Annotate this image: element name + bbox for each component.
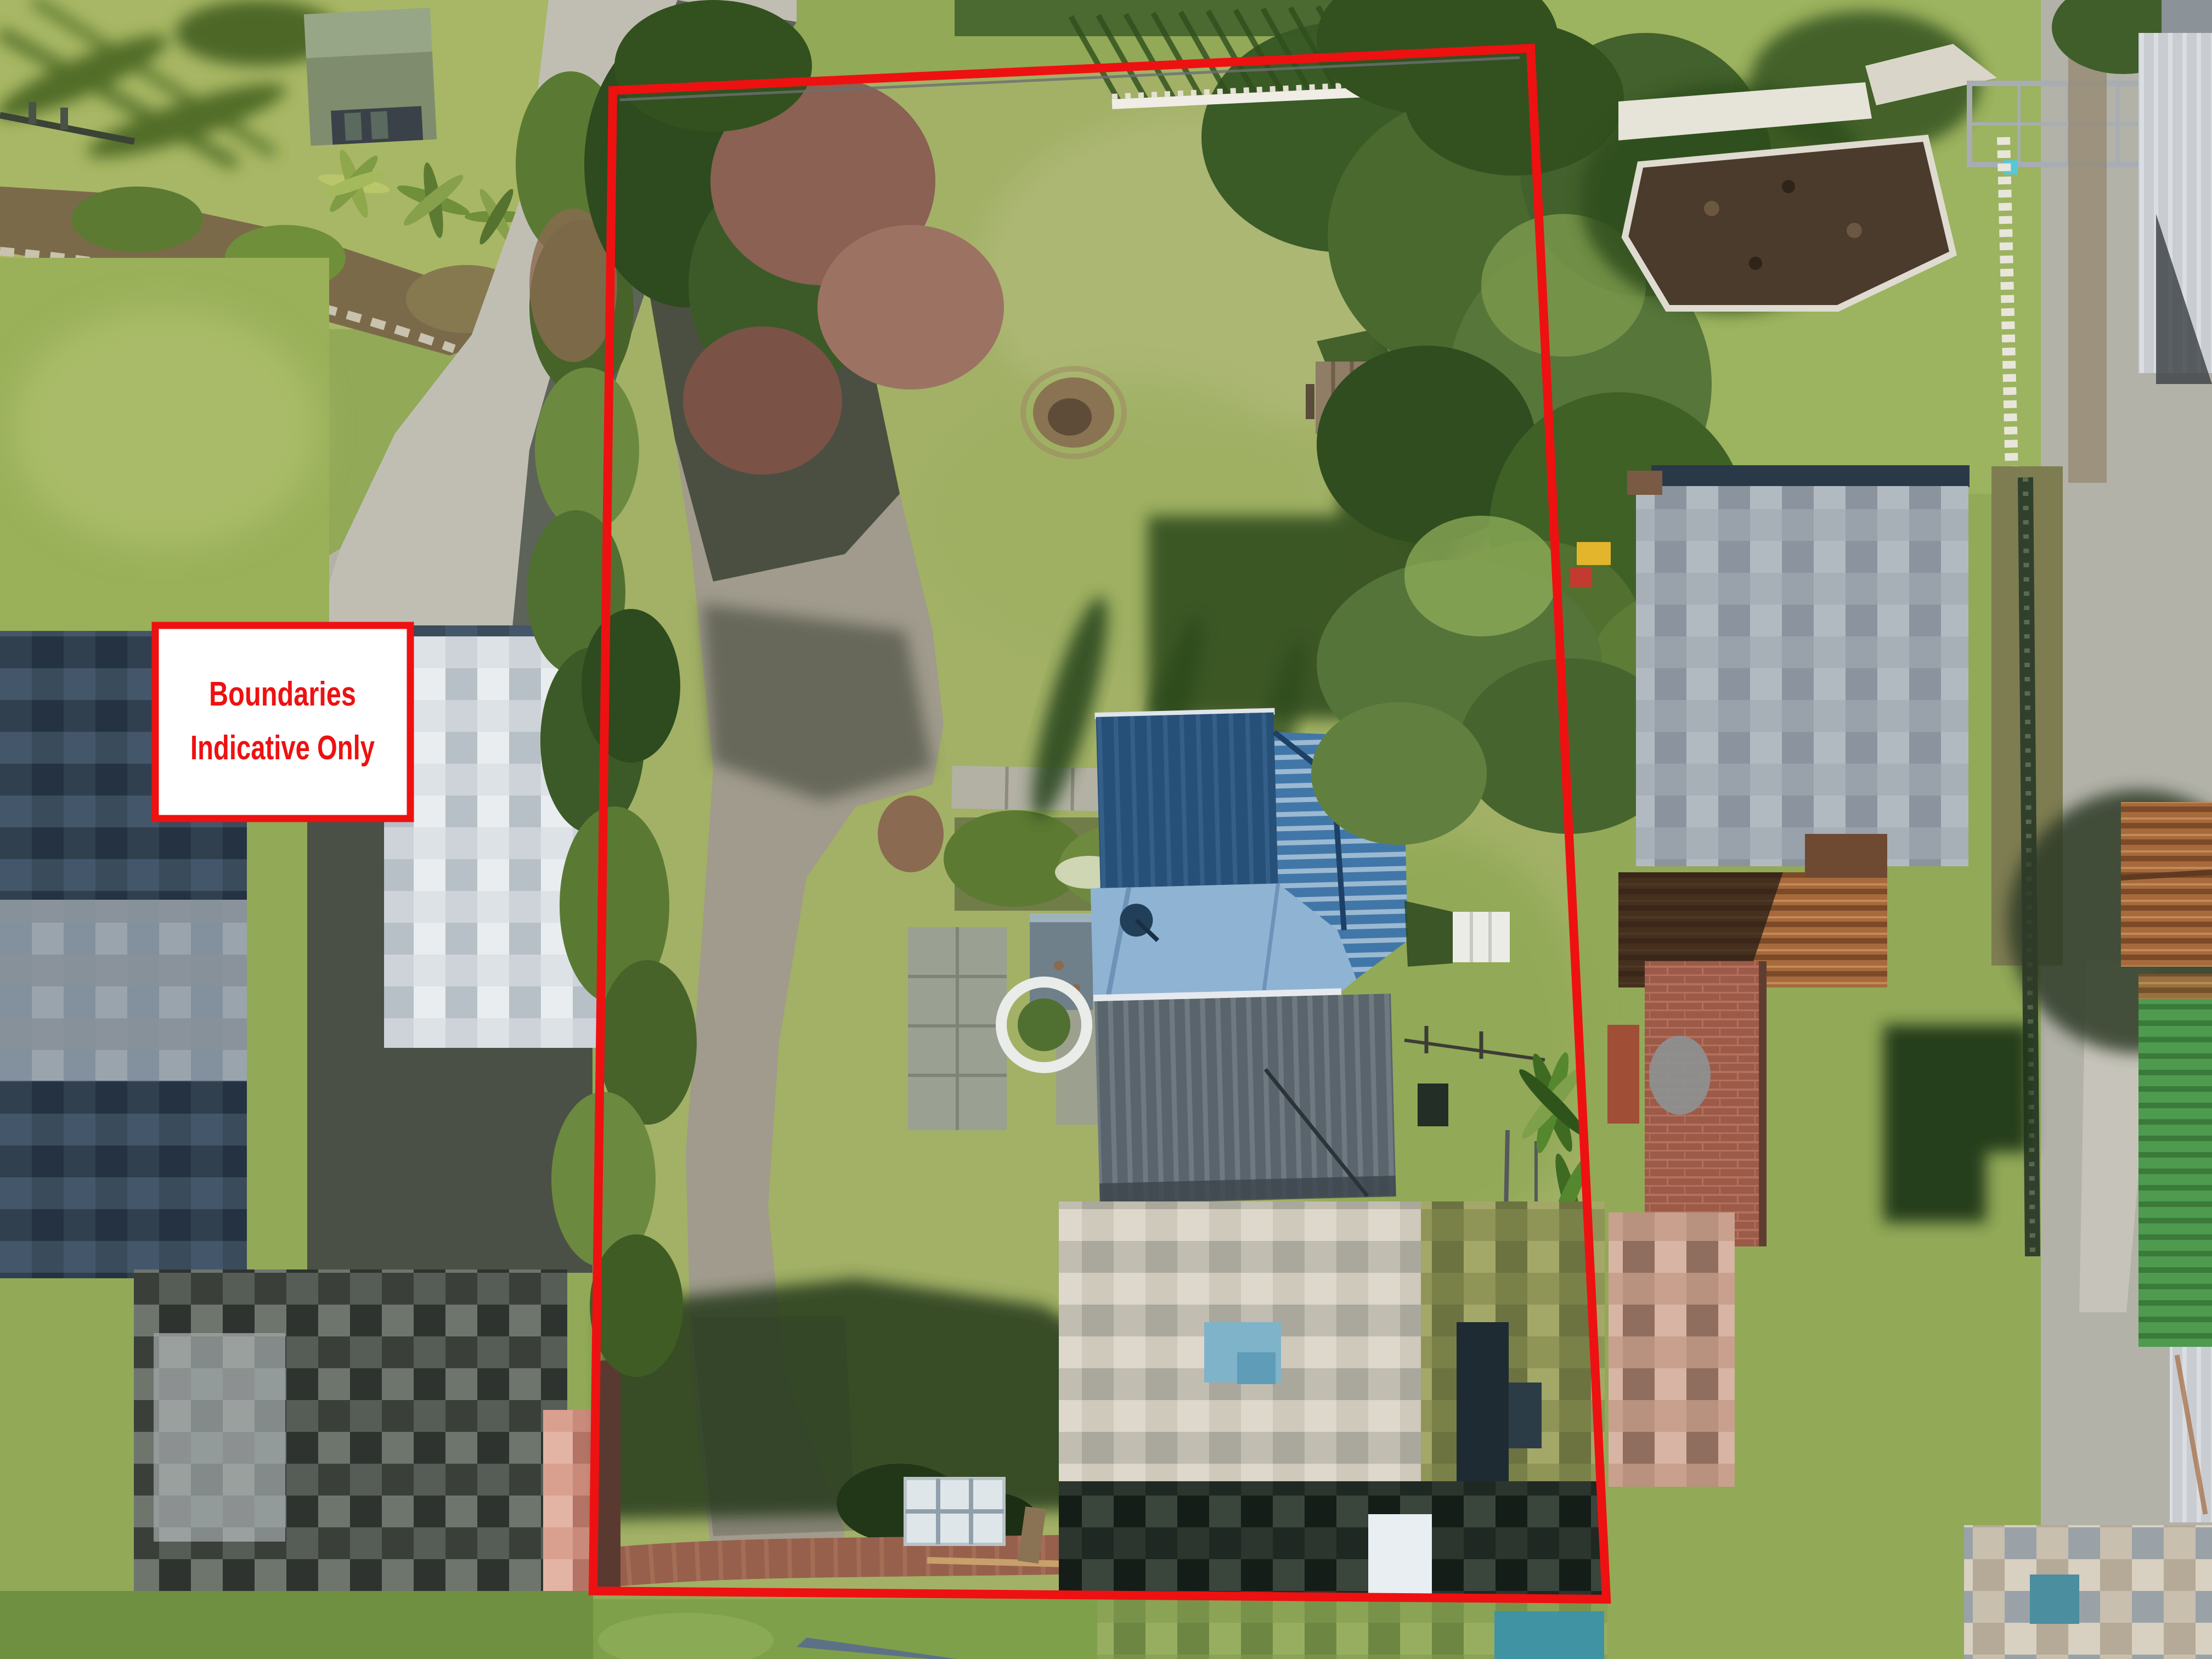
fire-pit [1023,369,1124,456]
small-shed [1030,913,1093,1010]
pixelated-pool [1494,1611,1604,1659]
pixelated-bottom-structures [1059,1201,1605,1599]
white-picket-fence-east [2004,137,2012,494]
dark-panel [1418,1084,1448,1126]
disclaimer-line1: Boundaries [209,675,356,713]
yellow-toy [1577,542,1611,565]
pixelated-structure-pink [1609,1212,1735,1487]
disclaimer-line2: Indicative Only [190,729,375,767]
aerial-photo: Boundaries Indicative Only [0,0,2212,1659]
garden-shed [304,8,437,146]
pixelated-roof-east [1636,486,1968,866]
pixelated-bottom-right [1964,1525,2212,1659]
disclaimer-label: Boundaries Indicative Only [155,625,410,819]
rusty-shed [2121,802,2212,967]
green-corrugated-roof [2138,974,2212,1347]
roof-rear-gray [1094,994,1396,1203]
red-toy [1570,567,1592,587]
disclaimer-box [155,625,410,819]
brick-pile [1607,1025,1639,1124]
white-shelf-unit [905,1479,1004,1544]
south-strip [593,1599,1607,1659]
